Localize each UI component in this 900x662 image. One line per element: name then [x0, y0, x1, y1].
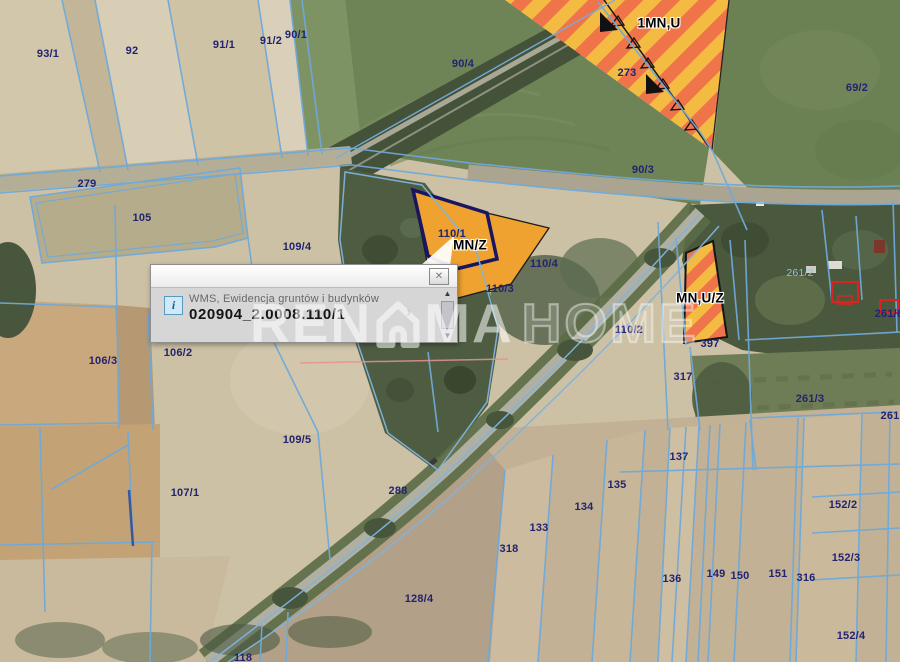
- popup-scrollbar[interactable]: ▲ ▼: [440, 289, 455, 341]
- popup-body: i WMS, Ewidencja gruntów i budynków 0209…: [151, 288, 457, 342]
- feature-id: 020904_2.0008.110/1: [189, 306, 379, 323]
- popup-text: WMS, Ewidencja gruntów i budynków 020904…: [189, 293, 379, 323]
- scroll-down-icon[interactable]: ▼: [444, 331, 452, 341]
- popup-header: ✕: [151, 265, 457, 288]
- expand-chevron-icon[interactable]: ›: [406, 302, 411, 320]
- scroll-thumb[interactable]: [441, 301, 454, 329]
- map-viewport[interactable]: 93/19291/191/290/190/427369/290/32791051…: [0, 0, 900, 662]
- scroll-up-icon[interactable]: ▲: [444, 289, 452, 299]
- close-button[interactable]: ✕: [429, 268, 449, 285]
- layer-source-label: WMS, Ewidencja gruntów i budynków: [189, 293, 379, 305]
- info-icon: i: [164, 296, 183, 315]
- info-popup: ✕ i WMS, Ewidencja gruntów i budynków 02…: [150, 264, 458, 343]
